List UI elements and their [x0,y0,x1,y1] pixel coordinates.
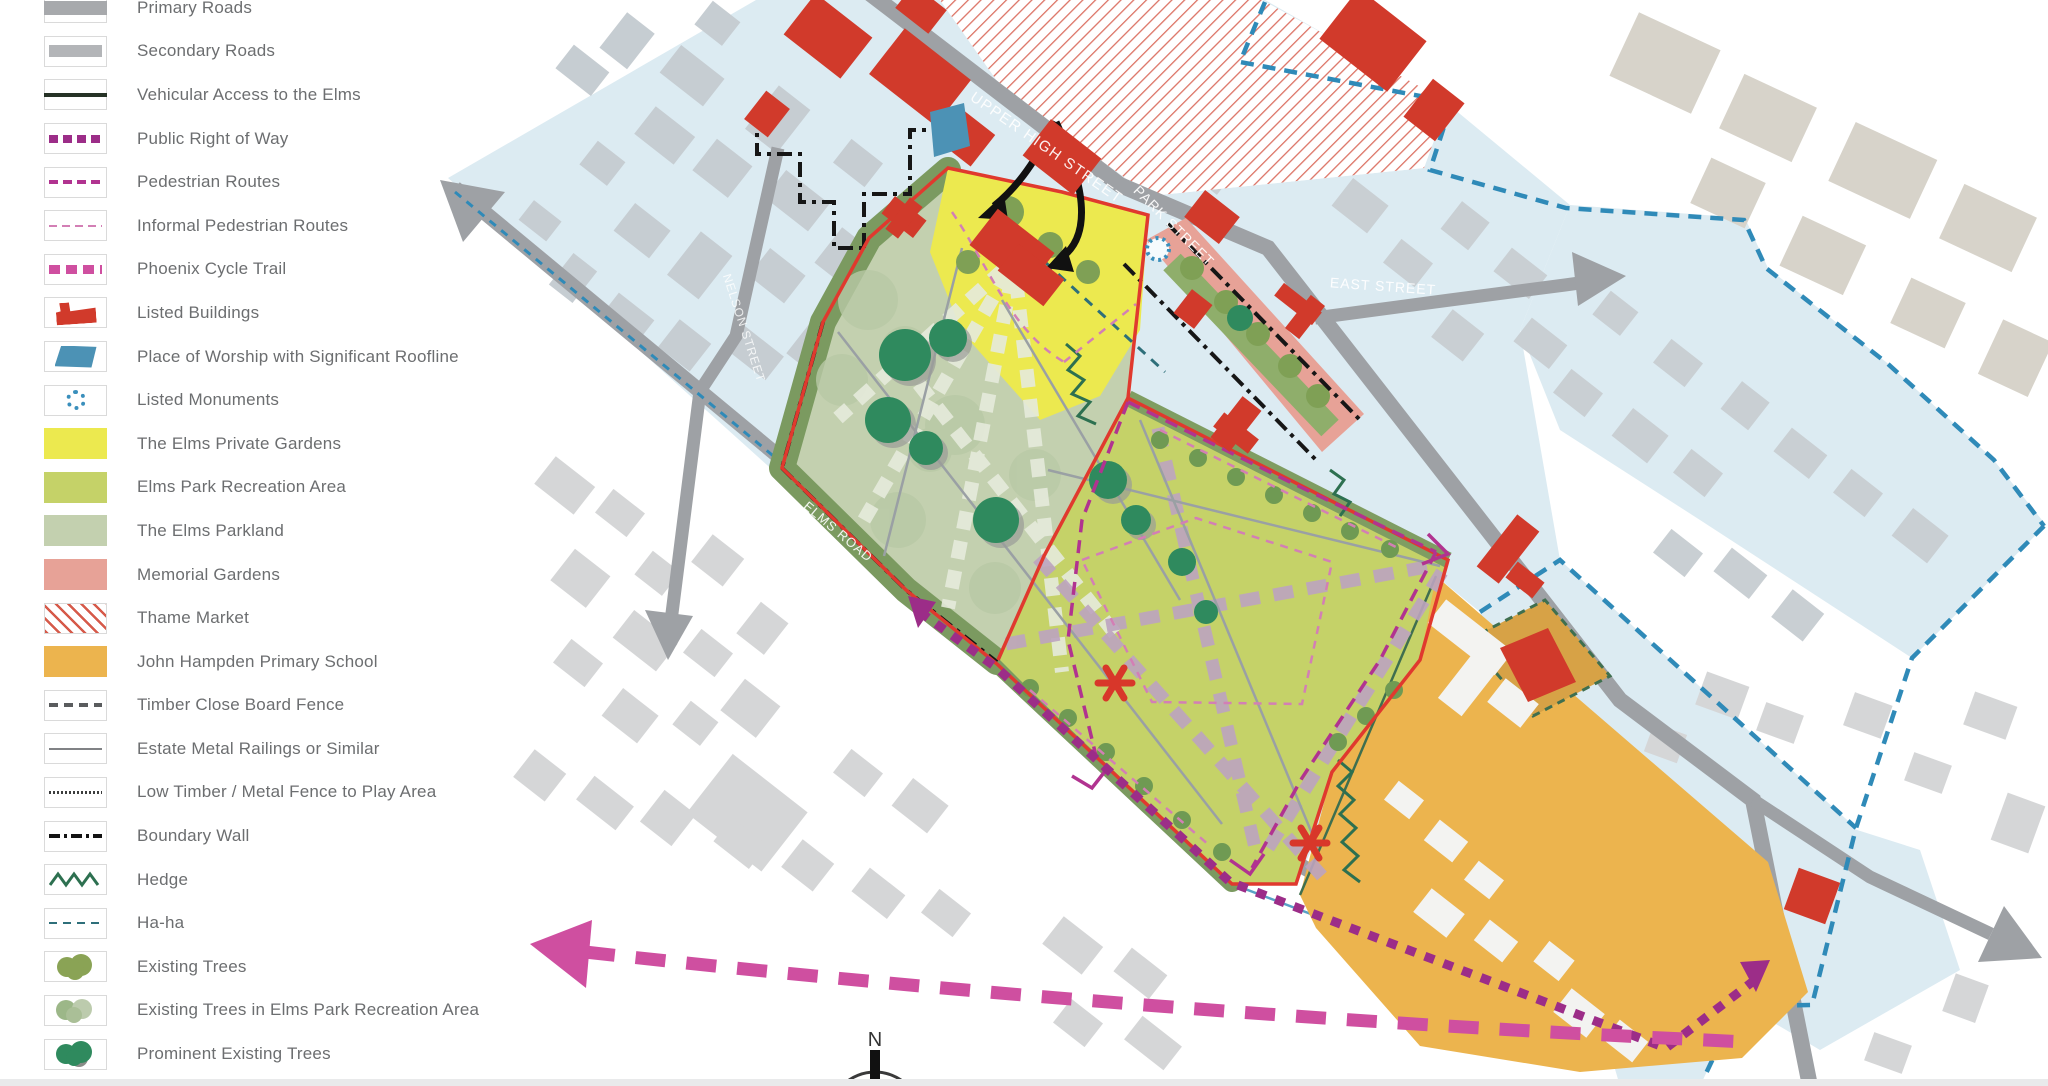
legend-label: Prominent Existing Trees [137,1044,331,1064]
legend-label: Vehicular Access to the Elms [137,85,361,105]
legend-item-primary-roads: Primary Roads [44,0,479,30]
legend-item-informal-pedestrian-routes: Informal Pedestrian Routes [44,204,479,248]
trail-arrowhead [530,920,592,988]
legend-swatch-thame-market [44,603,107,634]
legend-swatch-elms-private-gardens [44,428,107,459]
legend-item-elms-parkland: The Elms Parkland [44,509,479,553]
legend-swatch-elms-parkland [44,515,107,546]
site-plan-page: UPPER HIGH STREET PARK STREET EAST STREE… [0,0,2048,1086]
legend-item-elms-park-recreation-area: Elms Park Recreation Area [44,466,479,510]
legend-label: Pedestrian Routes [137,172,280,192]
legend-swatch-john-hampden-primary-school [44,646,107,677]
legend-swatch-prominent-existing-trees [44,1039,107,1070]
legend-item-timber-close-board-fence: Timber Close Board Fence [44,684,479,728]
page-bottom-strip [0,1079,2048,1086]
legend-item-elms-private-gardens: The Elms Private Gardens [44,422,479,466]
legend-item-prominent-existing-trees: Prominent Existing Trees [44,1032,479,1076]
legend-swatch-elms-park-recreation-area [44,472,107,503]
listed-monument [1147,238,1169,260]
legend-label: John Hampden Primary School [137,652,378,672]
legend-label: Existing Trees in Elms Park Recreation A… [137,1000,479,1020]
legend-item-ha-ha: Ha-ha [44,901,479,945]
legend-item-existing-trees-rec-area: Existing Trees in Elms Park Recreation A… [44,989,479,1033]
legend-item-secondary-roads: Secondary Roads [44,30,479,74]
legend-label: Elms Park Recreation Area [137,477,346,497]
legend-swatch-ha-ha [44,908,107,939]
legend-swatch-hedge [44,864,107,895]
legend-item-hedge: Hedge [44,858,479,902]
map-legend: Primary Roads Secondary Roads Vehicular … [44,0,479,1076]
prominent-trees-icon [49,1041,102,1067]
legend-label: Listed Monuments [137,390,279,410]
legend-item-thame-market: Thame Market [44,596,479,640]
legend-swatch-memorial-gardens [44,559,107,590]
legend-item-estate-metal-railings: Estate Metal Railings or Similar [44,727,479,771]
legend-item-memorial-gardens: Memorial Gardens [44,553,479,597]
legend-item-listed-monuments: Listed Monuments [44,378,479,422]
legend-label: Boundary Wall [137,826,250,846]
legend-swatch-secondary-roads [44,36,107,67]
legend-item-boundary-wall: Boundary Wall [44,814,479,858]
legend-label: Hedge [137,870,188,890]
legend-label: Timber Close Board Fence [137,695,344,715]
legend-label: Thame Market [137,608,249,628]
compass-label: N [868,1029,882,1051]
legend-swatch-timber-close-board-fence [44,690,107,721]
legend-swatch-primary-roads [44,0,107,23]
legend-label: Estate Metal Railings or Similar [137,739,380,759]
legend-label: Primary Roads [137,0,252,18]
legend-swatch-estate-metal-railings [44,733,107,764]
legend-item-low-timber-metal-fence: Low Timber / Metal Fence to Play Area [44,771,479,815]
legend-swatch-phoenix-cycle-trail [44,254,107,285]
legend-label: Low Timber / Metal Fence to Play Area [137,782,436,802]
legend-swatch-pedestrian-routes [44,167,107,198]
legend-label: Memorial Gardens [137,565,280,585]
legend-swatch-vehicular-access [44,79,107,110]
pale-trees-icon [49,997,102,1023]
worship-icon [55,346,97,368]
legend-item-john-hampden-primary-school: John Hampden Primary School [44,640,479,684]
legend-label: Secondary Roads [137,41,275,61]
monument-icon [66,390,86,410]
legend-label: Existing Trees [137,957,247,977]
legend-item-pedestrian-routes: Pedestrian Routes [44,160,479,204]
legend-swatch-existing-trees [44,951,107,982]
legend-label: Ha-ha [137,913,184,933]
legend-swatch-low-timber-metal-fence [44,777,107,808]
legend-label: Public Right of Way [137,129,289,149]
legend-swatch-listed-buildings [44,297,107,328]
legend-swatch-informal-pedestrian-routes [44,210,107,241]
legend-label: Listed Buildings [137,303,259,323]
legend-item-public-right-of-way: Public Right of Way [44,117,479,161]
legend-item-vehicular-access: Vehicular Access to the Elms [44,73,479,117]
legend-label: The Elms Parkland [137,521,284,541]
compass-north: N [829,1029,921,1086]
existing-trees-icon [49,954,102,980]
legend-item-place-of-worship: Place of Worship with Significant Roofli… [44,335,479,379]
listed-building-icon [55,301,96,326]
legend-swatch-place-of-worship [44,341,107,372]
legend-item-phoenix-cycle-trail: Phoenix Cycle Trail [44,248,479,292]
legend-label: The Elms Private Gardens [137,434,341,454]
legend-item-listed-buildings: Listed Buildings [44,291,479,335]
legend-label: Informal Pedestrian Routes [137,216,348,236]
legend-swatch-public-right-of-way [44,123,107,154]
legend-label: Place of Worship with Significant Roofli… [137,347,459,367]
hedge-zigzag-icon [49,871,102,889]
legend-label: Phoenix Cycle Trail [137,259,286,279]
legend-item-existing-trees: Existing Trees [44,945,479,989]
legend-swatch-existing-trees-rec-area [44,995,107,1026]
legend-swatch-listed-monuments [44,385,107,416]
legend-swatch-boundary-wall [44,821,107,852]
